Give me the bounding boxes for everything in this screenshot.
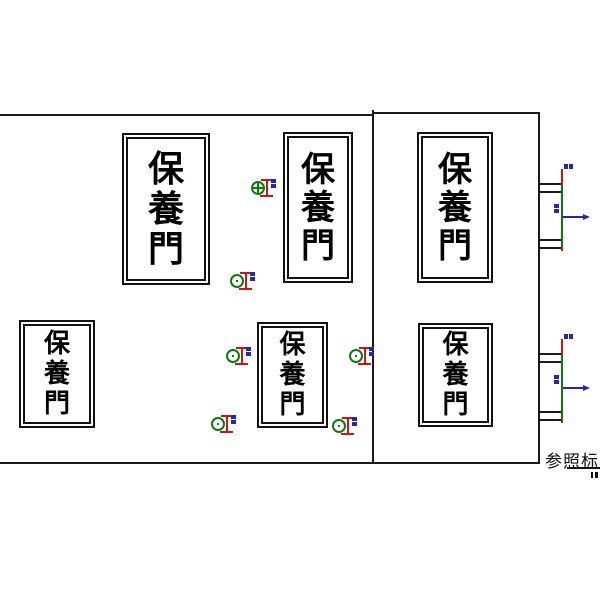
marker-circle-icon xyxy=(211,417,225,431)
marker-circle-icon xyxy=(332,419,346,433)
beam-line[interactable] xyxy=(540,411,562,413)
reference-elevation-submark xyxy=(591,472,598,478)
beam-line[interactable] xyxy=(540,191,562,193)
marker-blue-tag-icon xyxy=(369,347,374,356)
door-inner-frame: 保養門 xyxy=(261,326,324,424)
door-inner-frame: 保養門 xyxy=(421,136,489,279)
reference-elevation-underline xyxy=(567,467,600,469)
survey-marker[interactable] xyxy=(230,273,246,289)
elevation-arrow-line xyxy=(563,387,583,389)
bottom-wall[interactable] xyxy=(0,462,540,464)
marker-circle-icon xyxy=(230,274,244,288)
marker-circle-icon xyxy=(226,349,240,363)
maintenance-door[interactable]: 保養門 xyxy=(283,132,353,283)
connector-blue-tag-icon xyxy=(564,334,574,339)
door-label: 保養門 xyxy=(147,149,185,269)
survey-marker[interactable] xyxy=(211,416,227,432)
door-label: 保養門 xyxy=(437,151,473,265)
door-inner-frame: 保養門 xyxy=(23,324,91,424)
elevation-arrow-head-icon xyxy=(583,385,590,391)
beam-line[interactable] xyxy=(540,247,562,249)
marker-red-tick-base xyxy=(341,433,354,435)
connector-red-bottom-seg xyxy=(561,247,563,251)
maintenance-door[interactable]: 保養門 xyxy=(418,323,493,427)
marker-blue-tag-icon xyxy=(271,179,276,188)
door-label: 保養門 xyxy=(300,151,336,265)
marker-blue-tag-icon xyxy=(231,415,236,424)
connector-red-top-seg xyxy=(561,339,563,355)
door-inner-frame: 保養門 xyxy=(287,136,349,279)
marker-circle-icon xyxy=(251,181,265,195)
left-section-top-wall[interactable] xyxy=(0,114,374,116)
maintenance-door[interactable]: 保養門 xyxy=(19,320,95,428)
door-inner-frame: 保養門 xyxy=(126,137,206,281)
beam-line[interactable] xyxy=(540,353,562,355)
connector-blue-tag2-icon xyxy=(554,375,559,385)
door-inner-frame: 保養門 xyxy=(422,327,489,423)
marker-red-tick-base xyxy=(220,431,233,433)
marker-center-dot-icon xyxy=(355,355,357,357)
beam-line[interactable] xyxy=(540,419,562,421)
maintenance-door[interactable]: 保養門 xyxy=(122,133,210,285)
survey-marker[interactable] xyxy=(251,180,267,196)
marker-red-tick-base xyxy=(260,195,273,197)
marker-blue-tag-icon xyxy=(352,417,357,426)
marker-red-tick-base xyxy=(358,363,371,365)
door-label: 保養門 xyxy=(442,330,469,420)
marker-circle-icon xyxy=(349,349,363,363)
connector-red-top-seg xyxy=(561,169,563,185)
elevation-arrow-head-icon xyxy=(583,214,590,220)
marker-blue-tag-icon xyxy=(250,272,255,281)
connector-red-bottom-seg xyxy=(561,419,563,423)
marker-red-tick-base xyxy=(239,288,252,290)
door-label: 保養門 xyxy=(43,329,70,419)
connector-blue-tag-icon xyxy=(564,164,574,169)
beam-line[interactable] xyxy=(540,239,562,241)
elevation-arrow-line xyxy=(563,216,583,218)
survey-marker[interactable] xyxy=(349,348,365,364)
beam-line[interactable] xyxy=(540,183,562,185)
maintenance-door[interactable]: 保養門 xyxy=(257,322,328,428)
connector-blue-tag2-icon xyxy=(554,204,559,214)
door-label: 保養門 xyxy=(279,330,306,420)
marker-red-tick-base xyxy=(235,363,248,365)
marker-center-dot-icon xyxy=(217,423,219,425)
survey-marker[interactable] xyxy=(332,418,348,434)
cad-drawing-canvas: 参照标高 保養門保養門保養門保養門保養門保養門 xyxy=(0,0,600,600)
marker-center-dot-icon xyxy=(232,355,234,357)
beam-line[interactable] xyxy=(540,361,562,363)
marker-blue-tag-icon xyxy=(246,347,251,356)
marker-center-dot-icon xyxy=(236,280,238,282)
divider-wall[interactable] xyxy=(372,110,374,464)
survey-marker[interactable] xyxy=(226,348,242,364)
maintenance-door[interactable]: 保養門 xyxy=(417,132,493,283)
right-section-top-wall[interactable] xyxy=(372,112,540,114)
marker-center-dot-icon xyxy=(338,425,340,427)
marker-cross-v-icon xyxy=(257,183,259,193)
